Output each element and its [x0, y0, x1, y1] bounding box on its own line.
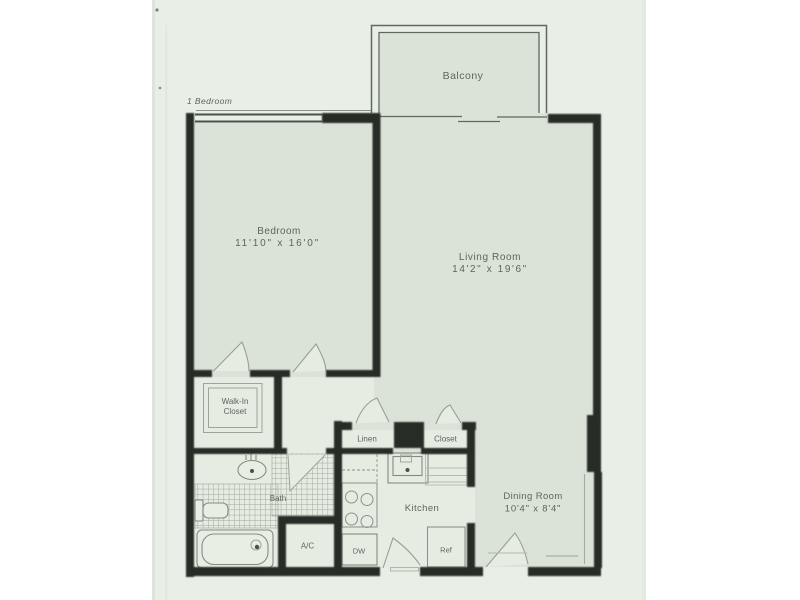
- svg-text:1 Bedroom: 1 Bedroom: [187, 96, 232, 106]
- svg-text:11'10" x 16'0": 11'10" x 16'0": [235, 238, 320, 249]
- svg-text:Bath: Bath: [270, 494, 286, 503]
- svg-text:Linen: Linen: [357, 435, 377, 444]
- svg-text:Walk-In: Walk-In: [222, 397, 249, 406]
- svg-text:14'2" x 19'6": 14'2" x 19'6": [452, 264, 528, 275]
- svg-text:10'4" x 8'4": 10'4" x 8'4": [505, 504, 561, 515]
- svg-text:Living Room: Living Room: [459, 252, 521, 263]
- svg-text:Dining Room: Dining Room: [503, 491, 562, 502]
- svg-text:Closet: Closet: [224, 407, 247, 416]
- svg-text:Bedroom: Bedroom: [257, 226, 300, 237]
- svg-text:Balcony: Balcony: [443, 70, 484, 82]
- svg-text:Kitchen: Kitchen: [405, 503, 440, 514]
- svg-text:DW: DW: [353, 547, 366, 556]
- svg-text:Ref: Ref: [440, 546, 453, 555]
- svg-text:Closet: Closet: [434, 435, 457, 444]
- svg-text:A/C: A/C: [301, 542, 315, 551]
